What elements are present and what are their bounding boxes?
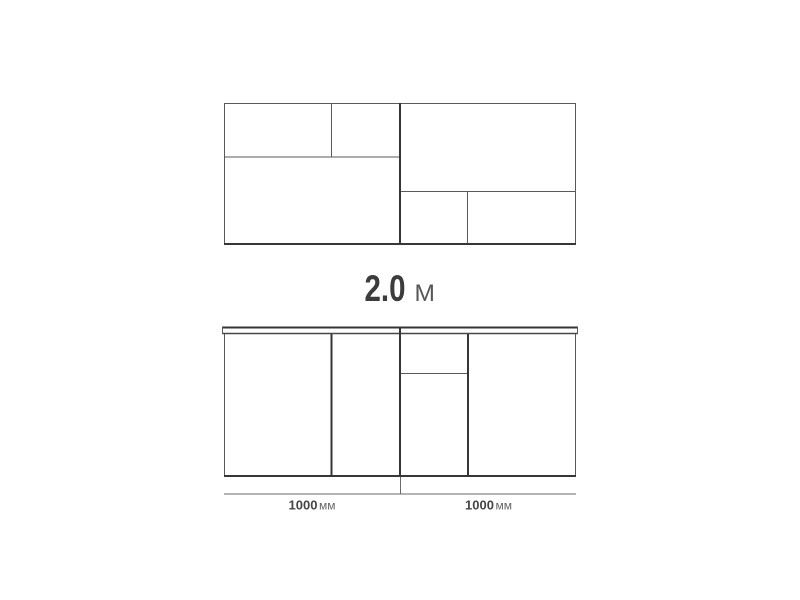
- svg-text:мм: мм: [496, 499, 513, 513]
- svg-text:1000: 1000: [465, 498, 494, 513]
- svg-text:1000: 1000: [289, 498, 318, 513]
- svg-text:мм: мм: [319, 499, 336, 513]
- svg-text:М: М: [415, 280, 435, 307]
- svg-text:2.0: 2.0: [365, 268, 406, 309]
